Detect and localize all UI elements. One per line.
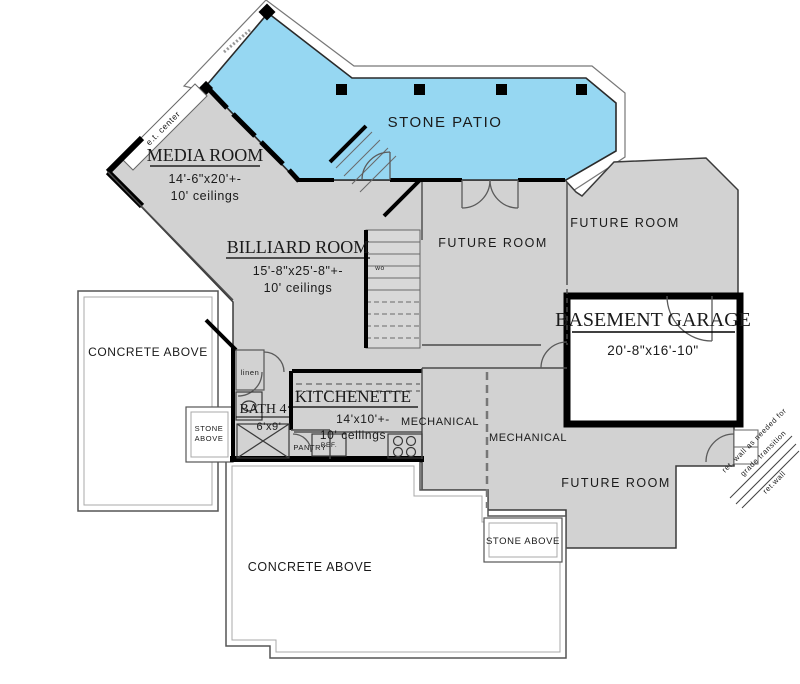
label-kitchenette-dims: 14'x10'+- <box>336 412 390 426</box>
label-kitchenette: KITCHENETTE <box>295 387 411 406</box>
label-billiard-room-dims: 15'-8"x25'-8"+- <box>253 264 343 278</box>
label-ret-wall: ret.wall <box>761 469 788 496</box>
label-billiard-room-ceiling: 10' ceilings <box>264 281 333 295</box>
label-ref: REF. <box>321 442 338 449</box>
label-stone-above-bottom: STONE ABOVE <box>486 536 560 547</box>
floor-plan-canvas: STONE PATIO MEDIA ROOM 14'-6"x20'+- 10' … <box>0 0 800 684</box>
label-kitchenette-ceiling: 10' ceilings <box>320 428 386 442</box>
label-bath4: BATH 4 <box>239 402 286 417</box>
label-wo: wo <box>374 265 385 272</box>
label-media-room-ceiling: 10' ceilings <box>171 189 240 203</box>
label-future-room-bottom: FUTURE ROOM <box>561 476 671 490</box>
label-future-room-top-center: FUTURE ROOM <box>438 236 548 250</box>
concrete-above-left-area <box>78 291 218 511</box>
label-concrete-above-left: CONCRETE ABOVE <box>88 345 208 359</box>
label-stone-patio: STONE PATIO <box>388 114 503 131</box>
label-media-room-dims: 14'-6"x20'+- <box>168 172 241 186</box>
label-linen: linen <box>241 368 260 377</box>
deck-post-icon <box>414 84 425 95</box>
label-media-room: MEDIA ROOM <box>147 145 264 165</box>
label-bath4-dims: 6'x9' <box>257 421 282 433</box>
label-stone-above-left-1: STONE <box>195 424 224 433</box>
label-mechanical-left: MECHANICAL <box>401 416 479 428</box>
label-billiard-room: BILLIARD ROOM <box>227 237 370 257</box>
deck-post-icon <box>336 84 347 95</box>
label-mechanical-right: MECHANICAL <box>489 432 567 444</box>
label-basement-garage-dims: 20'-8"x16'-10" <box>607 343 698 358</box>
label-stone-above-left-2: ABOVE <box>195 434 224 443</box>
deck-post-icon <box>496 84 507 95</box>
label-basement-garage: BASEMENT GARAGE <box>555 309 751 331</box>
label-future-room-top-right: FUTURE ROOM <box>570 216 680 230</box>
label-concrete-above-bottom: CONCRETE ABOVE <box>248 560 372 574</box>
floor-plan-page: STONE PATIO MEDIA ROOM 14'-6"x20'+- 10' … <box>0 0 800 684</box>
deck-post-icon <box>576 84 587 95</box>
